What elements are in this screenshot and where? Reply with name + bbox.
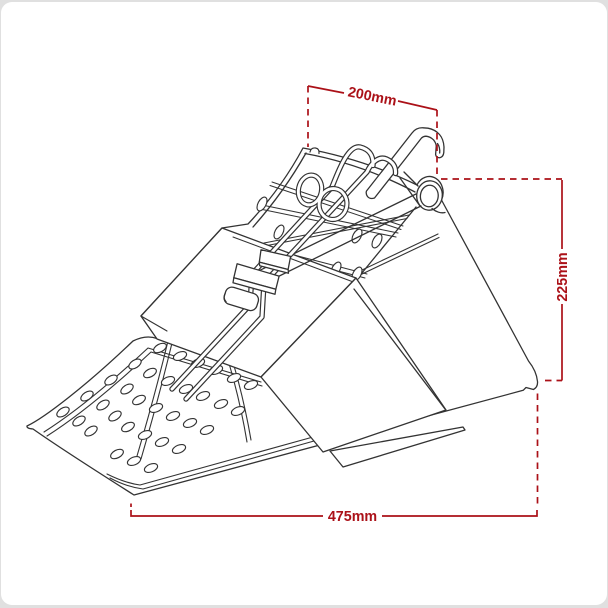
svg-text:475mm: 475mm xyxy=(328,509,377,525)
svg-text:200mm: 200mm xyxy=(346,84,397,109)
svg-text:225mm: 225mm xyxy=(555,252,571,301)
